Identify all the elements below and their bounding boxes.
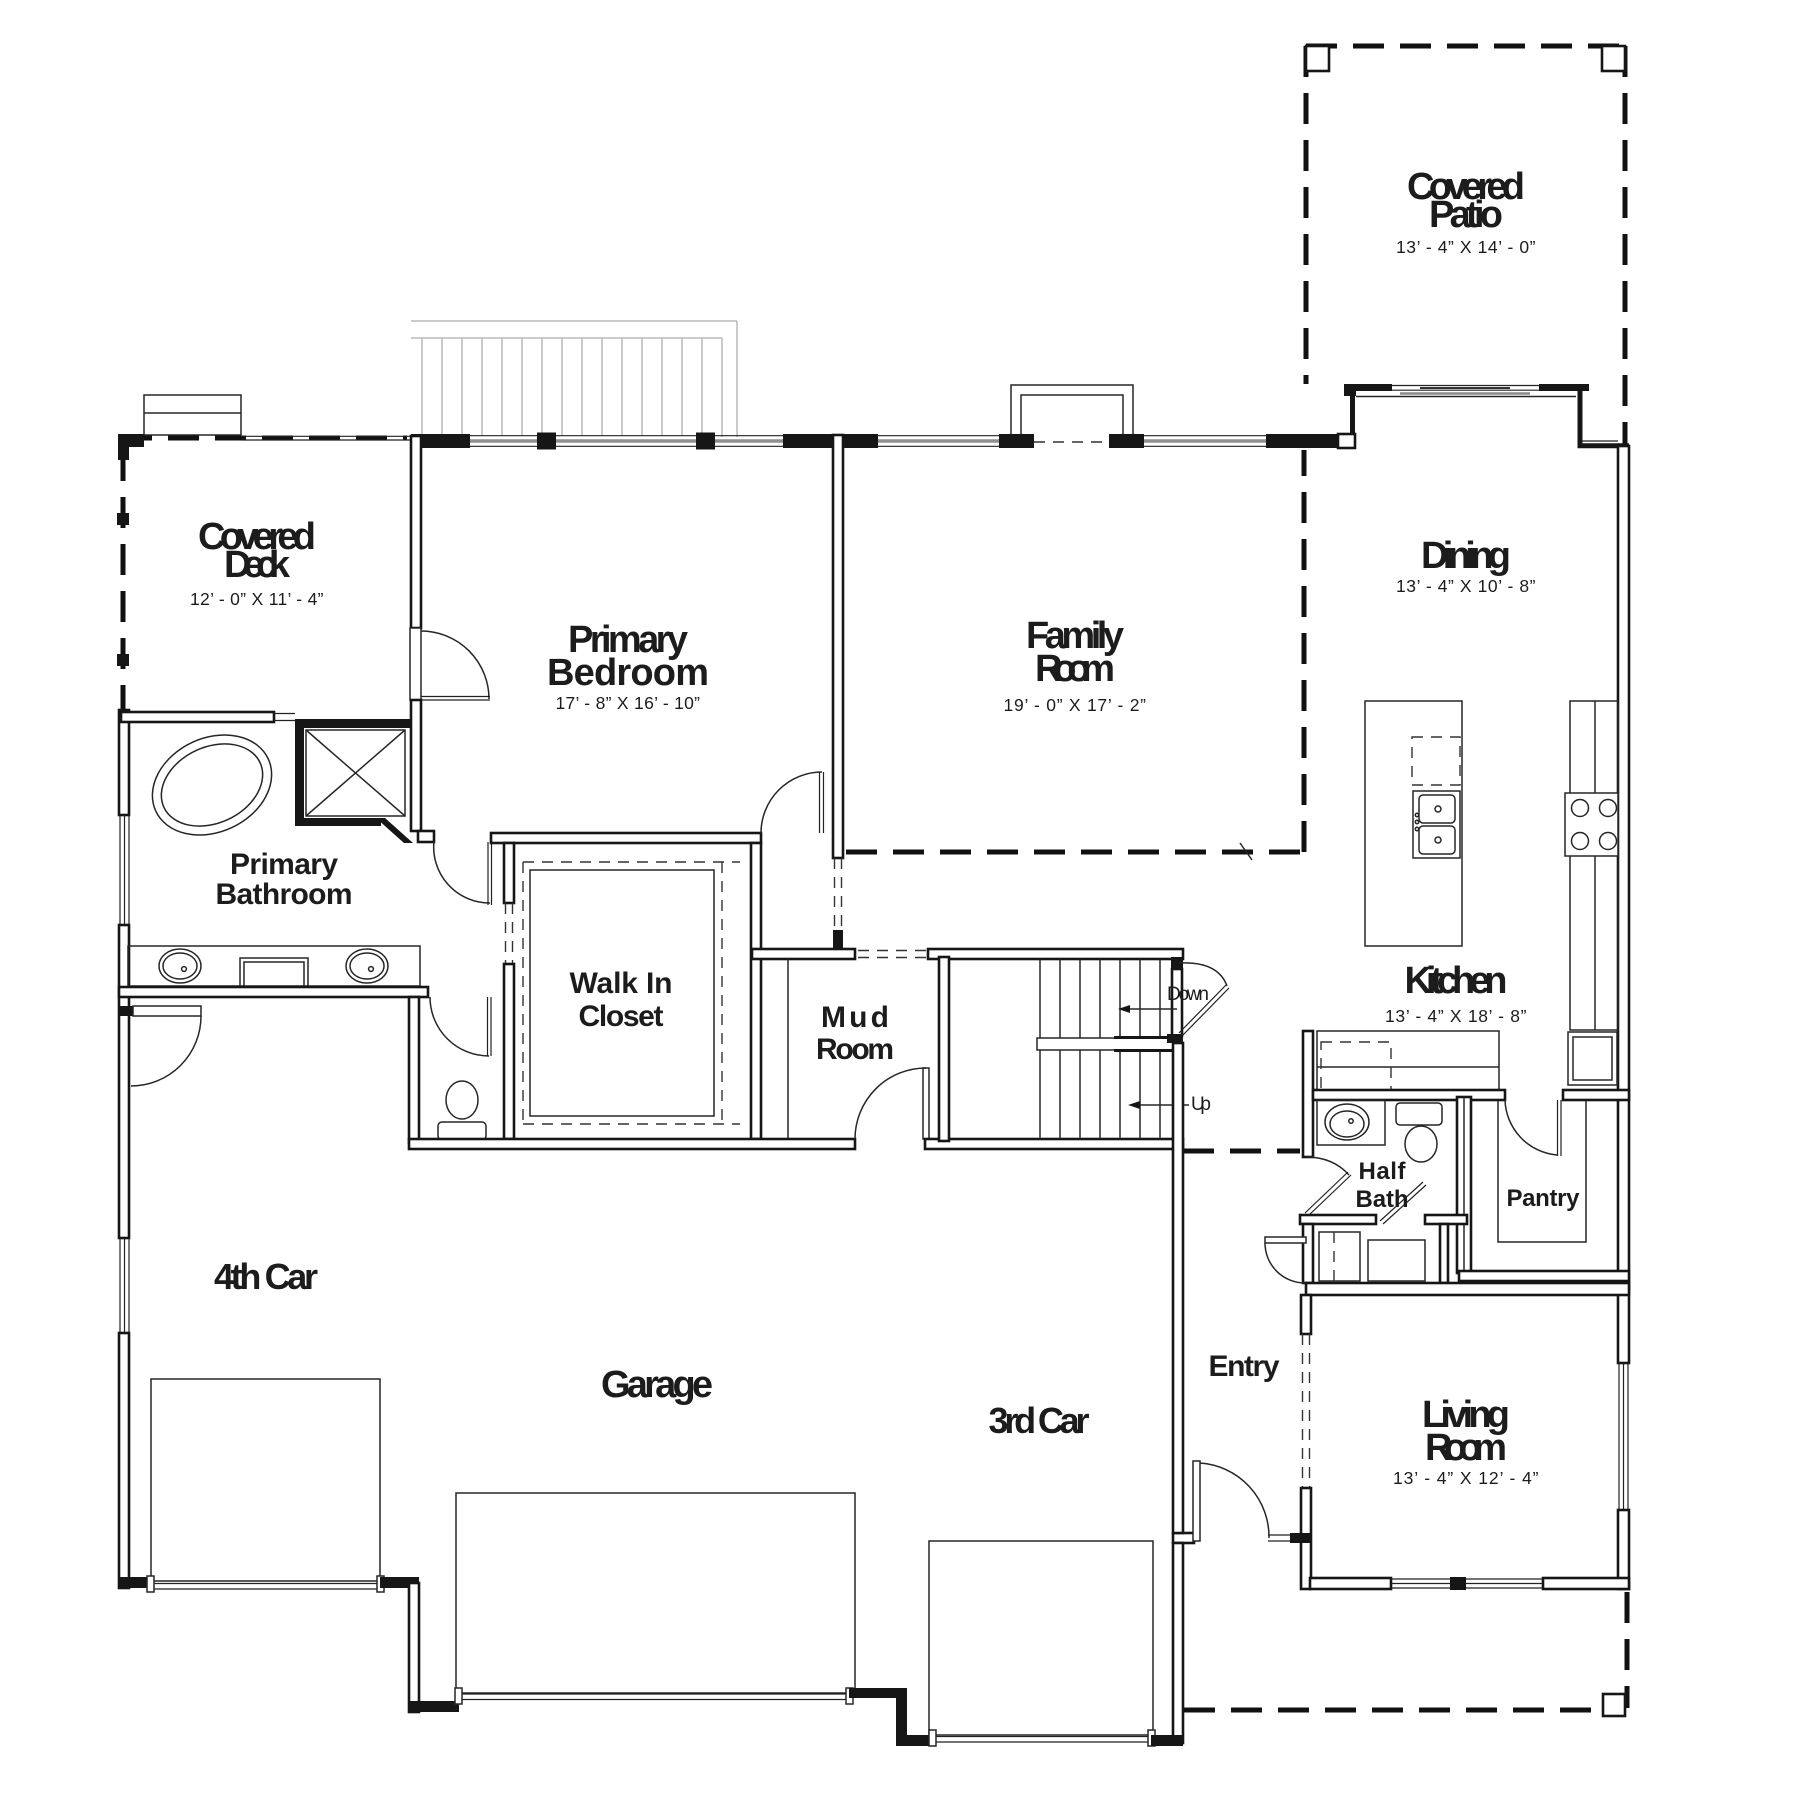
svg-text:Room: Room [1425, 1427, 1507, 1469]
svg-text:Room: Room [816, 1033, 894, 1066]
svg-text:13’ - 4” X 12’ - 4”: 13’ - 4” X 12’ - 4” [1393, 1468, 1539, 1488]
svg-text:Entry: Entry [1209, 1350, 1280, 1383]
svg-text:Bedroom: Bedroom [547, 652, 709, 694]
svg-text:12’ - 0” X 11’ - 4”: 12’ - 0” X 11’ - 4” [190, 589, 324, 609]
svg-text:Walk In: Walk In [570, 967, 673, 1000]
svg-text:13’ - 4” X 14’ - 0”: 13’ - 4” X 14’ - 0” [1396, 237, 1536, 257]
svg-text:Bathroom: Bathroom [216, 878, 353, 911]
svg-text:Mud: Mud [821, 1001, 889, 1034]
svg-text:Garage: Garage [601, 1364, 713, 1406]
svg-text:13’ - 4” X 10’ - 8”: 13’ - 4” X 10’ - 8” [1396, 576, 1536, 596]
svg-text:3rd Car: 3rd Car [989, 1400, 1090, 1441]
svg-text:4th Car: 4th Car [214, 1256, 318, 1297]
svg-text:Primary: Primary [230, 848, 338, 881]
svg-text:13’ - 4” X 18’ - 8”: 13’ - 4” X 18’ - 8” [1385, 1006, 1527, 1026]
svg-text:Up: Up [1191, 1094, 1211, 1115]
svg-text:Down: Down [1167, 984, 1209, 1005]
svg-text:Half: Half [1359, 1158, 1407, 1185]
svg-text:Room: Room [1035, 648, 1115, 690]
svg-text:Deck: Deck [224, 544, 291, 586]
svg-text:Kitchen: Kitchen [1405, 960, 1508, 1002]
svg-text:Bath: Bath [1356, 1186, 1409, 1213]
svg-text:Dining: Dining [1421, 535, 1511, 577]
svg-text:Patio: Patio [1429, 194, 1503, 236]
svg-text:19’ - 0” X 17’ - 2”: 19’ - 0” X 17’ - 2” [1004, 695, 1147, 715]
svg-text:17’ - 8” X 16’ - 10”: 17’ - 8” X 16’ - 10” [556, 693, 701, 713]
svg-text:Pantry: Pantry [1507, 1185, 1581, 1212]
svg-text:Closet: Closet [579, 1000, 664, 1033]
